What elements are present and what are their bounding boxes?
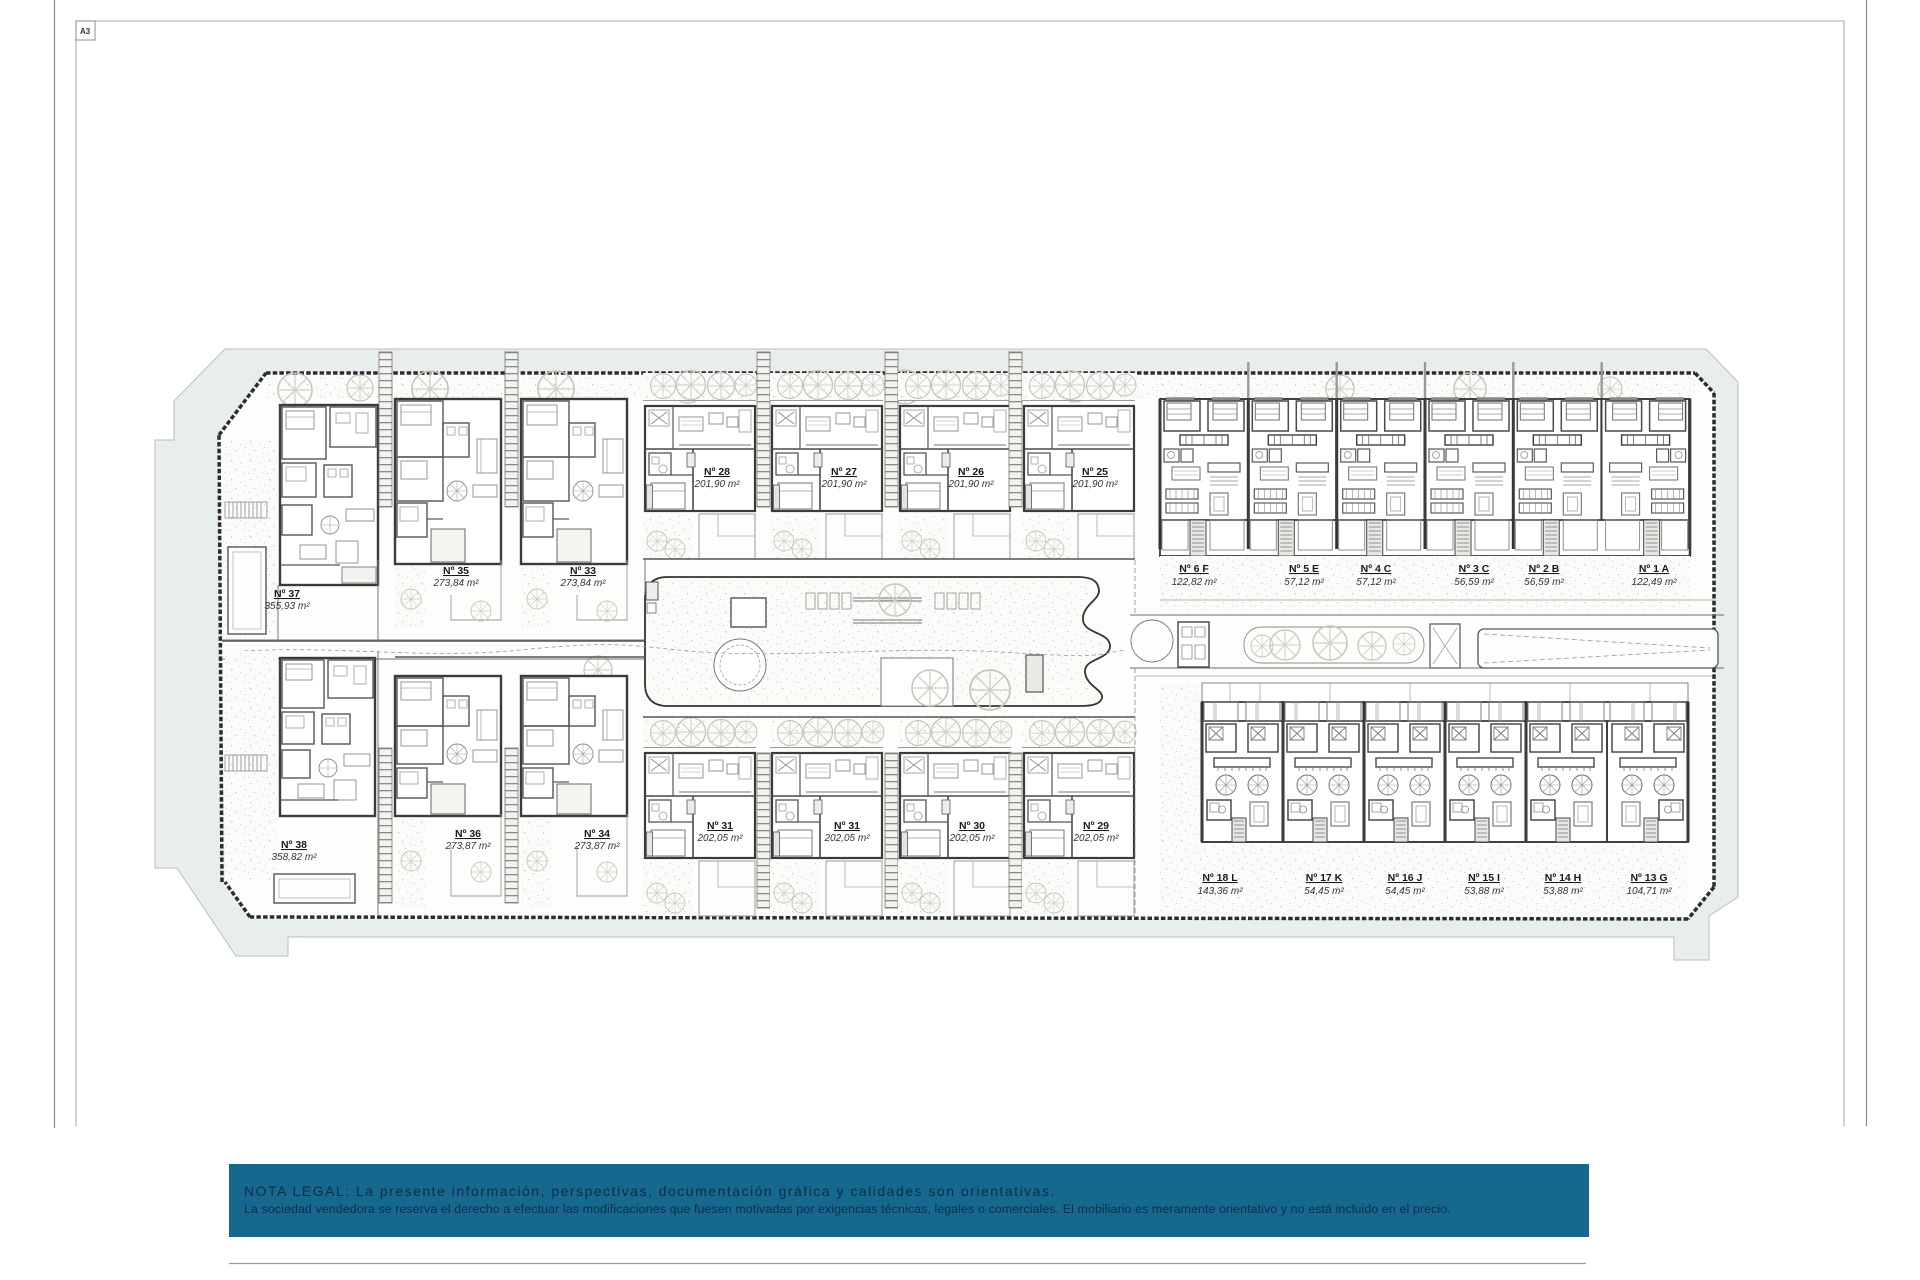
svg-text:Nº 34: Nº 34 <box>584 828 610 840</box>
svg-text:53,88 m²: 53,88 m² <box>1543 886 1583 897</box>
svg-text:La sociedad vendedora se reser: La sociedad vendedora se reserva el dere… <box>244 1202 1451 1216</box>
svg-text:202,05 m²: 202,05 m² <box>823 833 870 844</box>
svg-text:Nº 35: Nº 35 <box>443 565 469 577</box>
svg-text:358,82 m²: 358,82 m² <box>271 852 317 863</box>
svg-text:273,84 m²: 273,84 m² <box>559 578 606 589</box>
svg-text:Nº 16 J: Nº 16 J <box>1388 872 1423 884</box>
svg-text:Nº 36: Nº 36 <box>455 828 481 840</box>
svg-text:122,82 m²: 122,82 m² <box>1171 577 1217 588</box>
svg-text:201,90 m²: 201,90 m² <box>820 479 867 490</box>
svg-text:Nº 33: Nº 33 <box>570 565 596 577</box>
svg-text:Nº 31: Nº 31 <box>707 820 733 832</box>
svg-text:Nº 37: Nº 37 <box>274 588 300 600</box>
svg-text:202,05 m²: 202,05 m² <box>1072 833 1119 844</box>
svg-text:Nº 6 F: Nº 6 F <box>1179 563 1209 575</box>
svg-text:56,59 m²: 56,59 m² <box>1454 577 1494 588</box>
svg-text:Nº 3 C: Nº 3 C <box>1459 563 1490 575</box>
svg-text:Nº 17 K: Nº 17 K <box>1306 872 1343 884</box>
svg-text:Nº 1 A: Nº 1 A <box>1639 563 1670 575</box>
svg-text:355,93 m²: 355,93 m² <box>264 601 310 612</box>
svg-text:NOTA LEGAL: La presente inform: NOTA LEGAL: La presente información, per… <box>244 1183 1056 1199</box>
svg-text:202,05 m²: 202,05 m² <box>696 833 743 844</box>
svg-text:Nº 27: Nº 27 <box>831 466 857 478</box>
svg-text:54,45 m²: 54,45 m² <box>1385 886 1425 897</box>
svg-text:Nº 14 H: Nº 14 H <box>1545 872 1582 884</box>
svg-text:54,45 m²: 54,45 m² <box>1304 886 1344 897</box>
svg-text:Nº 2 B: Nº 2 B <box>1529 563 1560 575</box>
svg-text:Nº 18 L: Nº 18 L <box>1202 872 1238 884</box>
svg-text:104,71 m²: 104,71 m² <box>1626 886 1672 897</box>
svg-text:Nº 38: Nº 38 <box>281 839 307 851</box>
svg-text:201,90 m²: 201,90 m² <box>947 479 994 490</box>
svg-text:57,12 m²: 57,12 m² <box>1356 577 1396 588</box>
svg-text:Nº 28: Nº 28 <box>704 466 730 478</box>
svg-text:Nº 5 E: Nº 5 E <box>1289 563 1319 575</box>
svg-text:Nº 26: Nº 26 <box>958 466 984 478</box>
svg-text:273,84 m²: 273,84 m² <box>432 578 479 589</box>
svg-text:Nº 13 G: Nº 13 G <box>1630 872 1667 884</box>
svg-text:57,12 m²: 57,12 m² <box>1284 577 1324 588</box>
svg-text:Nº 15 I: Nº 15 I <box>1468 872 1500 884</box>
svg-text:202,05 m²: 202,05 m² <box>948 833 995 844</box>
svg-text:201,90 m²: 201,90 m² <box>693 479 740 490</box>
svg-text:A3: A3 <box>80 27 91 36</box>
svg-text:Nº 25: Nº 25 <box>1082 466 1108 478</box>
svg-text:143,36 m²: 143,36 m² <box>1197 886 1243 897</box>
svg-text:Nº 29: Nº 29 <box>1083 820 1109 832</box>
svg-text:Nº 4 C: Nº 4 C <box>1361 563 1392 575</box>
svg-text:53,88 m²: 53,88 m² <box>1464 886 1504 897</box>
svg-text:56,59 m²: 56,59 m² <box>1524 577 1564 588</box>
svg-text:273,87 m²: 273,87 m² <box>573 841 620 852</box>
svg-text:Nº 31: Nº 31 <box>834 820 860 832</box>
svg-text:273,87 m²: 273,87 m² <box>444 841 491 852</box>
svg-text:122,49 m²: 122,49 m² <box>1631 577 1677 588</box>
svg-text:201,90 m²: 201,90 m² <box>1071 479 1118 490</box>
svg-text:Nº 30: Nº 30 <box>959 820 985 832</box>
